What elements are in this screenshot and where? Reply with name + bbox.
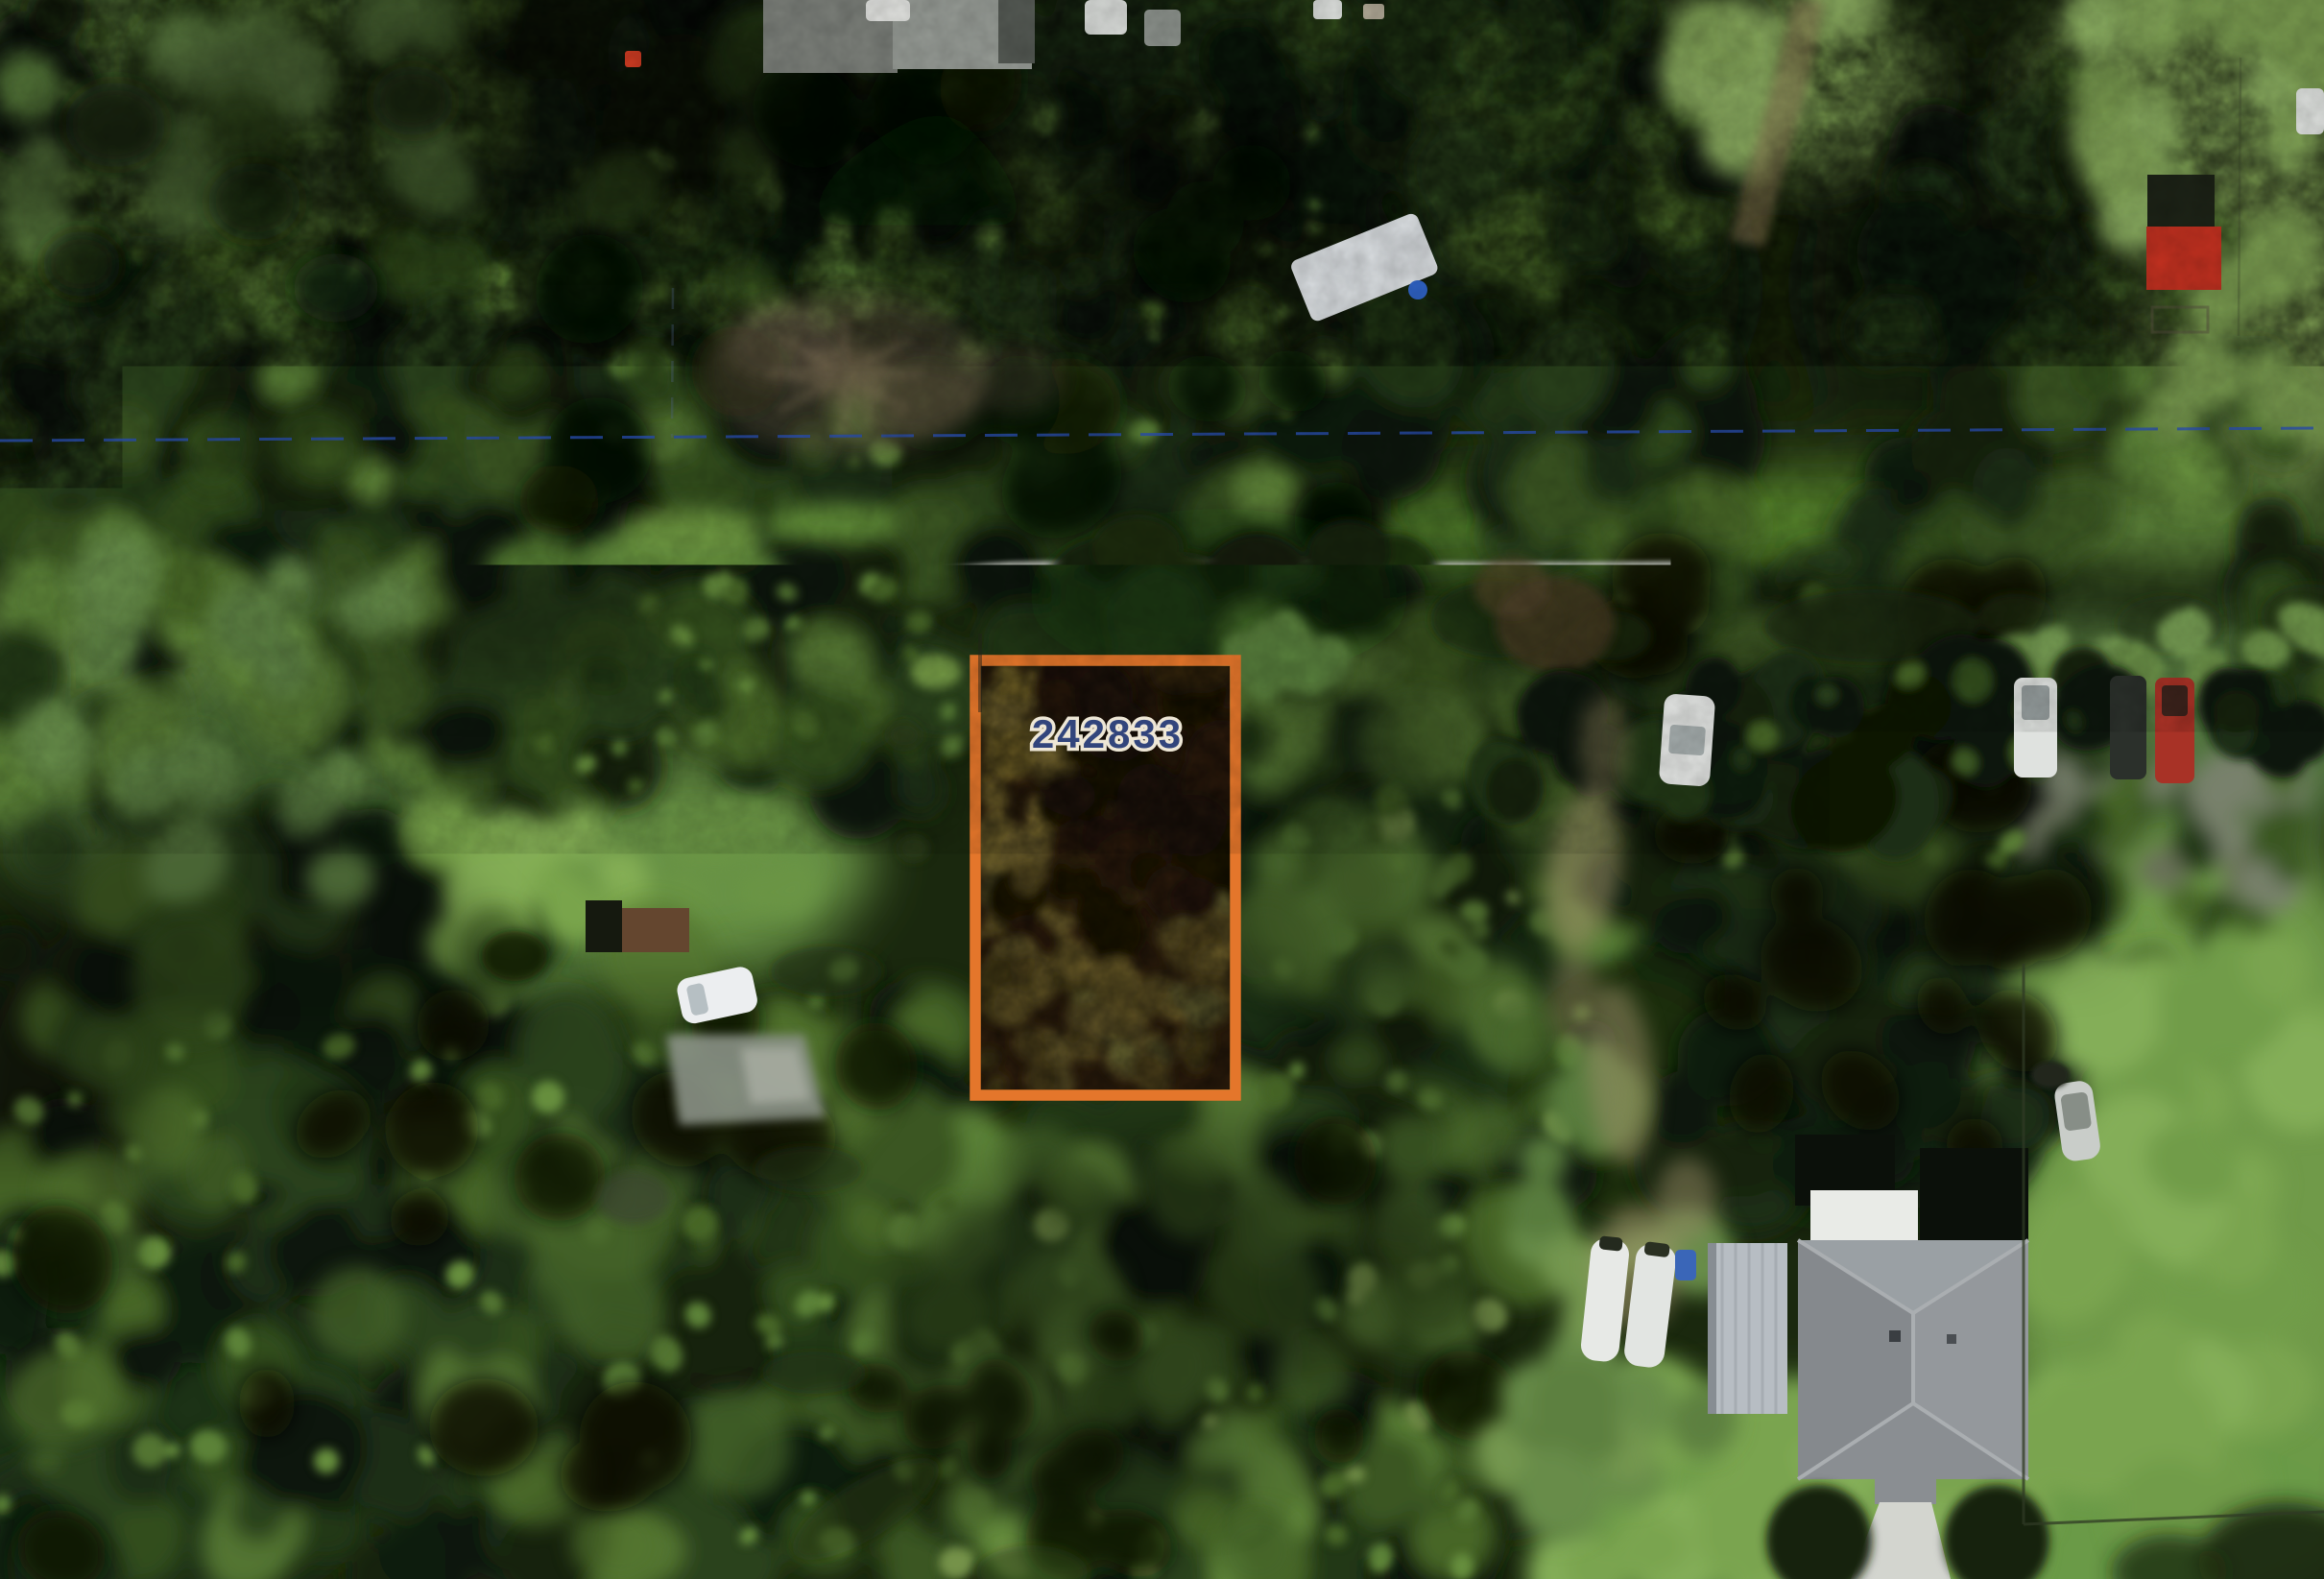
svg-text:242833: 242833: [1032, 711, 1184, 756]
